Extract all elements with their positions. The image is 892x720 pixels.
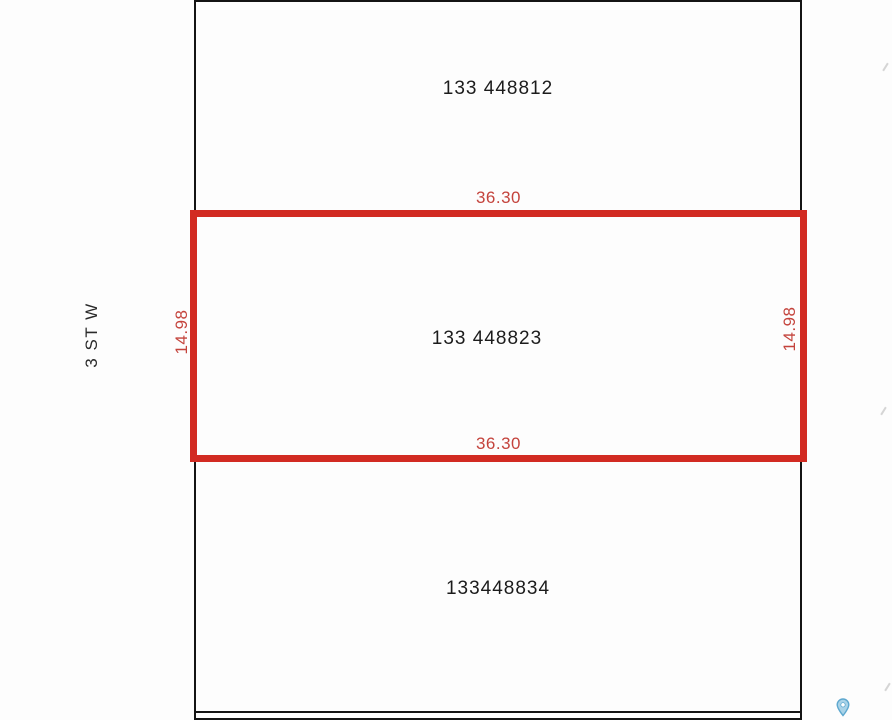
dimension-label-top: 36.30 bbox=[190, 188, 807, 208]
edge-artifact-bottom bbox=[884, 683, 890, 692]
parcel-region-north[interactable] bbox=[196, 2, 800, 210]
parcel-number-north: 133 448812 bbox=[194, 78, 802, 100]
edge-artifact-top bbox=[882, 63, 888, 72]
street-label: 3 ST W bbox=[82, 285, 100, 385]
dimension-label-right: 14.98 bbox=[780, 301, 798, 357]
parcel-number-selected: 133 448823 bbox=[194, 328, 780, 350]
parcel-map-canvas[interactable]: 3 ST W 133 448812 133 448823 133448834 3… bbox=[0, 0, 892, 720]
dimension-label-bottom: 36.30 bbox=[190, 434, 807, 454]
edge-artifact-middle bbox=[880, 407, 886, 416]
map-pin-icon[interactable] bbox=[836, 698, 850, 717]
parcel-number-south: 133448834 bbox=[194, 578, 802, 600]
boundary-line-bottom-upper bbox=[194, 711, 802, 713]
dimension-label-left: 14.98 bbox=[172, 304, 190, 360]
